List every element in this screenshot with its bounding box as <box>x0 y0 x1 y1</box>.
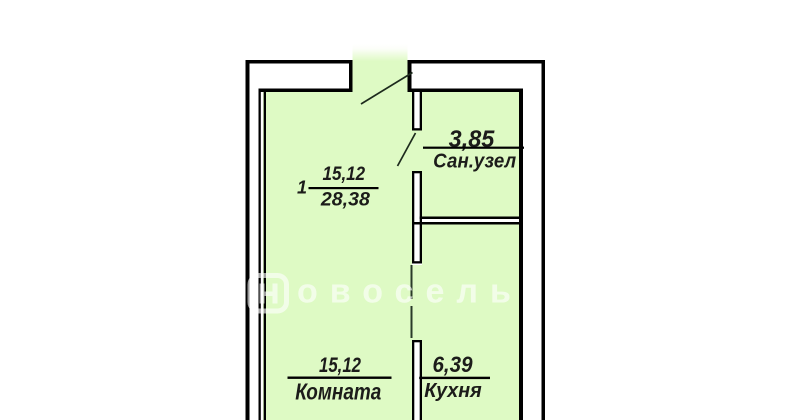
svg-text:Сан.узел: Сан.узел <box>433 151 517 173</box>
svg-text:3,85: 3,85 <box>449 126 495 153</box>
svg-text:Кухня: Кухня <box>424 380 482 402</box>
svg-text:6,39: 6,39 <box>433 352 474 377</box>
svg-text:1: 1 <box>297 178 307 198</box>
svg-text:Комната: Комната <box>295 378 381 404</box>
svg-text:15,12: 15,12 <box>323 164 366 185</box>
svg-text:15,12: 15,12 <box>319 353 361 377</box>
svg-text:овосель: овосель <box>297 273 523 311</box>
svg-text:28,38: 28,38 <box>320 189 370 211</box>
